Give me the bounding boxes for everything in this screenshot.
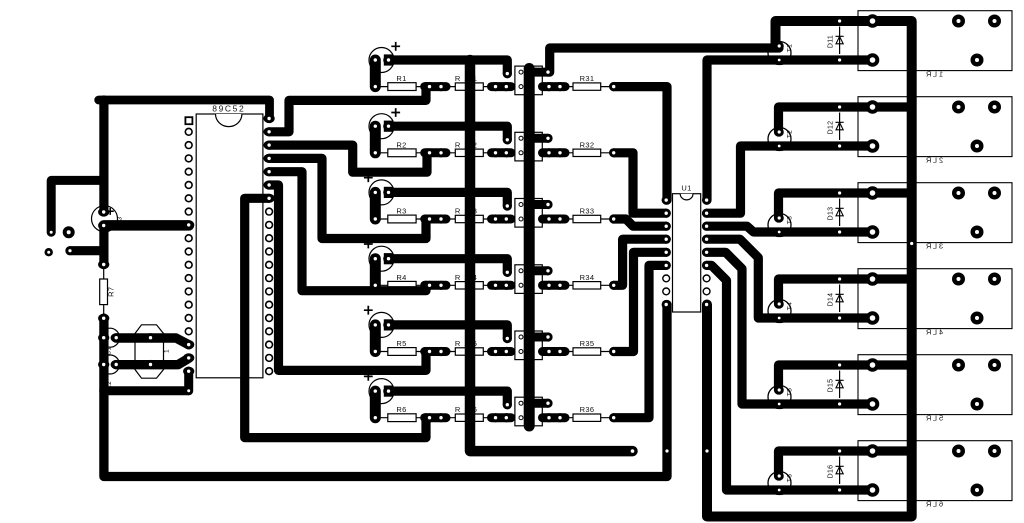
svg-text:T4: T4 xyxy=(787,302,794,311)
svg-text:L: L xyxy=(932,242,936,251)
svg-text:1: 1 xyxy=(939,70,943,79)
svg-text:T1: T1 xyxy=(787,44,794,53)
svg-text:D15: D15 xyxy=(827,379,834,393)
svg-text:R1: R1 xyxy=(396,74,406,83)
svg-text:R: R xyxy=(925,414,931,423)
svg-text:89C52: 89C52 xyxy=(212,104,245,114)
svg-text:R32: R32 xyxy=(580,140,595,149)
svg-text:L: L xyxy=(932,500,936,509)
svg-text:L: L xyxy=(932,328,936,337)
svg-text:D12: D12 xyxy=(827,121,834,135)
svg-text:L: L xyxy=(932,70,936,79)
svg-text:R34: R34 xyxy=(580,273,595,282)
svg-text:L: L xyxy=(932,414,936,423)
svg-text:R7: R7 xyxy=(107,287,116,297)
svg-text:R35: R35 xyxy=(580,339,595,348)
svg-text:R5: R5 xyxy=(396,339,406,348)
svg-text:3: 3 xyxy=(117,216,124,220)
svg-text:U1: U1 xyxy=(681,184,691,193)
svg-text:D11: D11 xyxy=(827,35,834,48)
svg-text:4: 4 xyxy=(939,328,943,337)
svg-text:R: R xyxy=(925,156,931,165)
svg-text:D13: D13 xyxy=(827,207,834,221)
svg-text:5: 5 xyxy=(939,414,943,423)
svg-text:R3: R3 xyxy=(396,207,406,216)
svg-text:T2: T2 xyxy=(787,130,794,139)
svg-text:R31: R31 xyxy=(580,74,595,83)
svg-text:R: R xyxy=(925,328,931,337)
svg-text:R6: R6 xyxy=(396,405,406,414)
svg-text:R4: R4 xyxy=(396,273,406,282)
svg-text:T5: T5 xyxy=(787,388,794,397)
svg-text:2: 2 xyxy=(939,156,943,165)
svg-text:L: L xyxy=(932,156,936,165)
svg-text:T3: T3 xyxy=(787,216,794,225)
svg-text:D14: D14 xyxy=(827,293,834,307)
svg-text:R: R xyxy=(925,242,931,251)
svg-text:6: 6 xyxy=(939,500,943,509)
svg-text:R36: R36 xyxy=(580,405,595,414)
svg-text:R2: R2 xyxy=(396,140,406,149)
svg-text:R33: R33 xyxy=(580,207,595,216)
svg-text:D16: D16 xyxy=(827,465,834,479)
svg-text:3: 3 xyxy=(939,242,943,251)
svg-text:T6: T6 xyxy=(787,474,794,483)
svg-text:R: R xyxy=(925,70,931,79)
svg-text:R: R xyxy=(925,500,931,509)
svg-text:1: 1 xyxy=(164,349,171,353)
